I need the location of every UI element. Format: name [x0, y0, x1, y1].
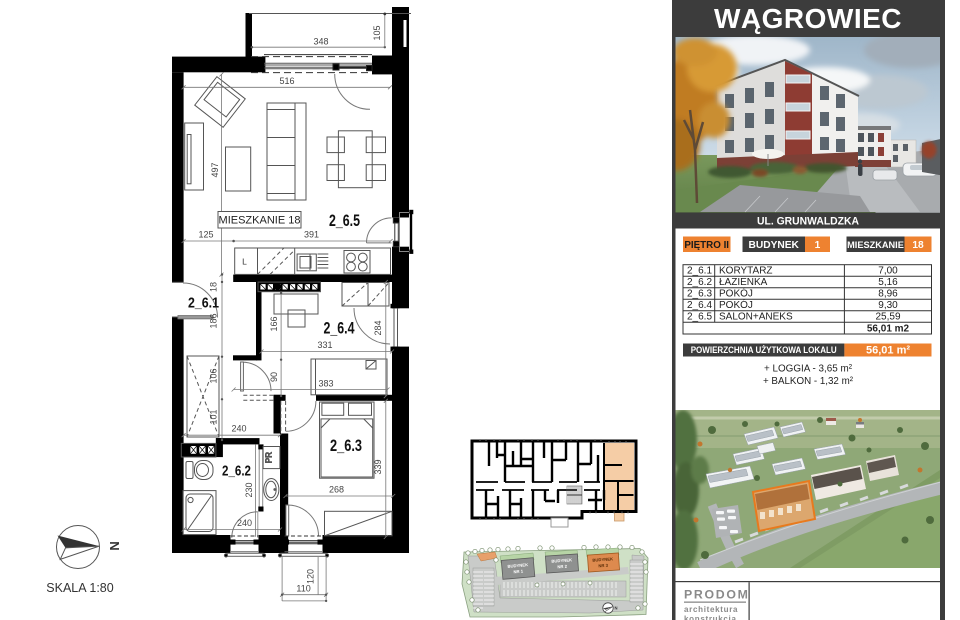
svg-text:2_6.2: 2_6.2 [222, 463, 251, 480]
svg-text:UL. GRUNWALDZKA: UL. GRUNWALDZKA [757, 216, 859, 228]
svg-text:166: 166 [269, 316, 279, 331]
svg-text:PRODOM: PRODOM [684, 588, 750, 602]
svg-text:25,59: 25,59 [875, 312, 900, 323]
svg-text:+ BALKON - 1,32 m²: + BALKON - 1,32 m² [763, 375, 853, 387]
svg-text:2_6.1: 2_6.1 [188, 295, 219, 312]
svg-text:PIĘTRO II: PIĘTRO II [684, 240, 729, 251]
svg-text:339: 339 [373, 459, 383, 474]
svg-text:240: 240 [231, 424, 246, 434]
svg-text:SKALA 1:80: SKALA 1:80 [46, 581, 113, 595]
svg-text:56,01 m²: 56,01 m² [866, 345, 910, 357]
svg-text:383: 383 [318, 379, 333, 389]
svg-text:8,96: 8,96 [878, 289, 898, 300]
svg-text:2_6.3: 2_6.3 [330, 437, 362, 455]
svg-text:1: 1 [815, 240, 821, 251]
svg-text:106: 106 [209, 368, 219, 383]
svg-text:ŁAZIENKA: ŁAZIENKA [719, 277, 768, 288]
svg-text:2_6.3: 2_6.3 [687, 289, 712, 300]
svg-text:KORYTARZ: KORYTARZ [719, 266, 773, 277]
svg-text:5,16: 5,16 [878, 277, 898, 288]
svg-text:POKÓJ: POKÓJ [719, 298, 753, 311]
svg-text:2_6.2: 2_6.2 [687, 277, 712, 288]
svg-text:konstrukcja: konstrukcja [684, 615, 737, 620]
svg-text:497: 497 [210, 162, 220, 177]
svg-text:120: 120 [306, 569, 316, 584]
svg-text:MIESZKANIE 18: MIESZKANIE 18 [219, 215, 301, 227]
svg-text:NR 1: NR 1 [513, 569, 524, 575]
svg-text:N: N [107, 541, 122, 550]
svg-text:105: 105 [372, 25, 382, 40]
svg-text:391: 391 [304, 230, 319, 240]
svg-text:POKÓJ: POKÓJ [719, 287, 753, 300]
svg-text:+ LOGGIA - 3,65 m²: + LOGGIA - 3,65 m² [764, 363, 852, 375]
svg-text:240: 240 [237, 518, 252, 528]
svg-text:331: 331 [317, 340, 332, 350]
svg-text:NR 2: NR 2 [557, 564, 568, 570]
svg-text:architektura: architektura [684, 605, 738, 614]
svg-text:18: 18 [912, 240, 924, 251]
svg-text:NR 3: NR 3 [598, 563, 609, 569]
svg-text:101: 101 [209, 409, 219, 424]
svg-text:L: L [242, 257, 247, 267]
svg-text:PR: PR [265, 452, 274, 463]
svg-text:186: 186 [209, 313, 219, 328]
svg-text:SALON+ANEKS: SALON+ANEKS [719, 312, 793, 323]
svg-text:2_6.5: 2_6.5 [329, 212, 360, 230]
svg-text:BUDYNEK: BUDYNEK [749, 240, 800, 251]
svg-text:7,00: 7,00 [878, 266, 898, 277]
svg-text:18: 18 [209, 282, 219, 292]
svg-text:516: 516 [279, 76, 294, 86]
svg-text:POWIERZCHNIA UŻYTKOWA LOKALU: POWIERZCHNIA UŻYTKOWA LOKALU [691, 345, 837, 355]
svg-text:2_6.4: 2_6.4 [324, 320, 356, 338]
svg-text:WĄGROWIEC: WĄGROWIEC [714, 3, 902, 34]
svg-text:9,30: 9,30 [878, 300, 898, 311]
svg-text:2_6.4: 2_6.4 [687, 300, 712, 311]
svg-text:348: 348 [313, 37, 328, 47]
svg-text:90: 90 [269, 372, 279, 382]
svg-text:2_6.5: 2_6.5 [687, 312, 712, 323]
svg-text:2_6.1: 2_6.1 [687, 266, 712, 277]
svg-text:125: 125 [198, 230, 213, 240]
svg-text:284: 284 [373, 320, 383, 335]
svg-text:56,01 m2: 56,01 m2 [867, 323, 910, 334]
svg-text:230: 230 [244, 482, 254, 497]
svg-text:MIESZKANIE: MIESZKANIE [847, 240, 904, 250]
svg-text:268: 268 [329, 485, 344, 495]
svg-text:N: N [615, 606, 618, 611]
